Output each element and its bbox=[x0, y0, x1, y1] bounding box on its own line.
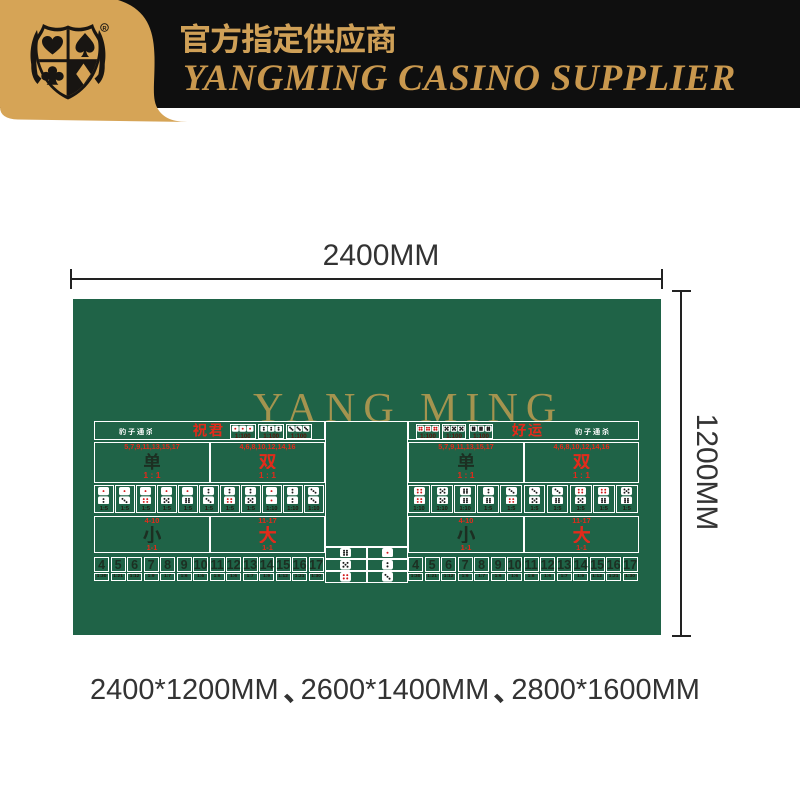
svg-text:R: R bbox=[102, 26, 106, 32]
svg-text:1:100: 1:100 bbox=[473, 432, 489, 439]
svg-text:1:100: 1:100 bbox=[420, 432, 436, 439]
svg-text:1:100: 1:100 bbox=[263, 432, 279, 439]
svg-text:1:100: 1:100 bbox=[446, 432, 462, 439]
svg-text:1:100: 1:100 bbox=[235, 432, 251, 439]
svg-text:1:100: 1:100 bbox=[291, 432, 307, 439]
